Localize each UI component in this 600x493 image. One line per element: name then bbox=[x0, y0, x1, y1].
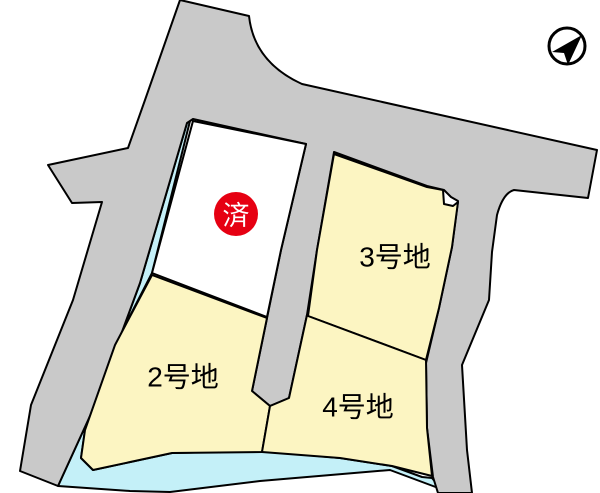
lot-map-canvas: 済 2号地 3号地 4号地 bbox=[0, 0, 600, 493]
lot-3-label: 3号地 bbox=[359, 242, 431, 273]
lot-4-label: 4号地 bbox=[322, 392, 394, 423]
north-arrow-icon bbox=[549, 28, 585, 65]
sold-badge-text: 済 bbox=[223, 201, 250, 231]
lot-2-label: 2号地 bbox=[147, 362, 219, 393]
lot-map: 済 2号地 3号地 4号地 bbox=[0, 0, 600, 493]
